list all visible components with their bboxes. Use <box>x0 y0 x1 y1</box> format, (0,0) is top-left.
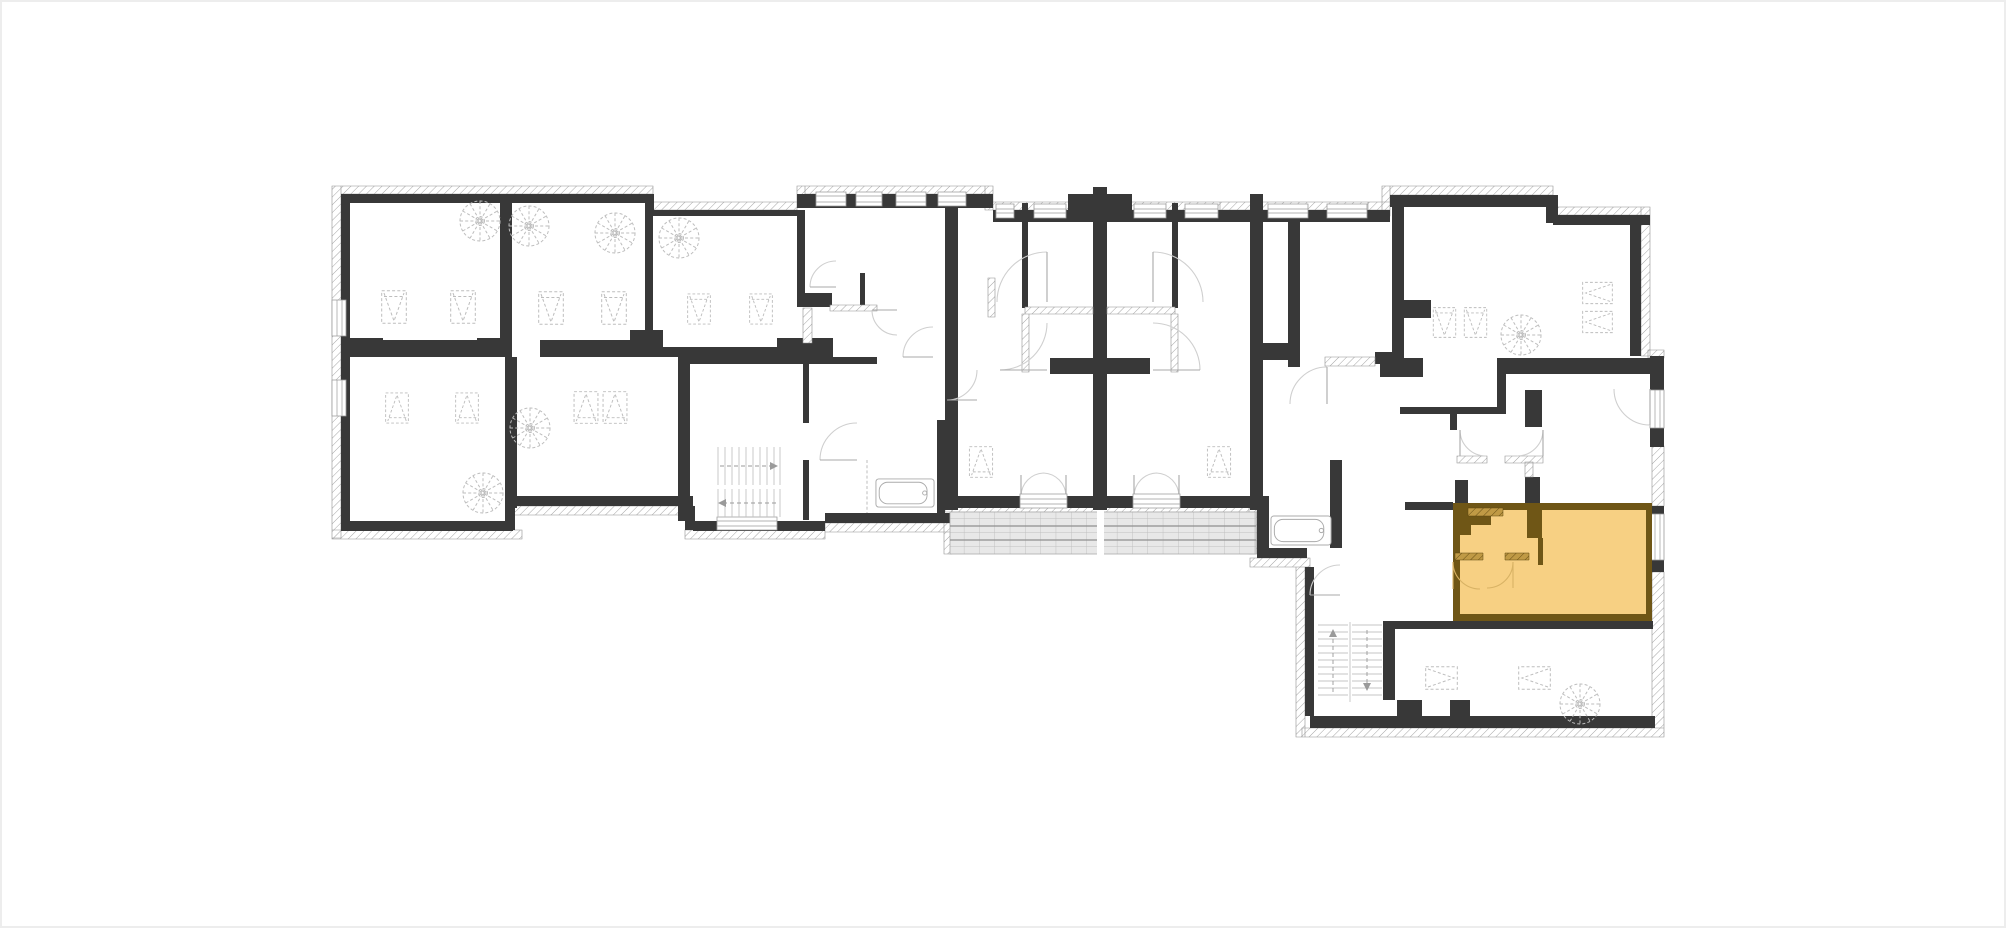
wardrobe-symbol <box>382 291 407 324</box>
sideboard-symbol <box>1583 311 1613 332</box>
sideboard-symbol <box>1519 667 1551 690</box>
chandelier-symbol <box>1501 315 1541 355</box>
wardrobe-symbol <box>1464 308 1486 338</box>
stair-arrow-head <box>1363 683 1371 691</box>
wardrobe-symbol <box>602 292 627 325</box>
bathtub-symbol <box>876 479 934 507</box>
french-door <box>1021 473 1066 496</box>
terrace-divider <box>1097 510 1104 556</box>
stair-treads <box>1318 622 1382 702</box>
wardrobe-symbol <box>688 294 711 324</box>
staircase-wing <box>1318 622 1382 702</box>
floor-plan <box>0 0 2006 928</box>
partition-hatch-walls <box>803 278 1543 477</box>
stair-direction-line <box>720 466 776 503</box>
chandelier-symbol <box>595 213 635 253</box>
highlighted-unit[interactable] <box>1453 503 1652 621</box>
sideboard-symbol <box>1426 667 1458 690</box>
staircase-left <box>718 447 780 517</box>
stair-arrow-head <box>718 499 726 507</box>
wardrobe-symbol <box>386 393 409 423</box>
chandelier-symbol <box>1560 684 1600 724</box>
chandelier-symbol <box>509 206 549 246</box>
wardrobe-symbol <box>539 292 564 325</box>
wardrobe-symbol <box>574 392 598 424</box>
chandelier-symbol <box>659 218 699 258</box>
wardrobe-symbol <box>603 392 627 424</box>
wardrobe-symbol <box>750 294 773 324</box>
partition-hatch-segment <box>803 278 1543 477</box>
stair-arrow-head <box>1329 629 1337 637</box>
french-door <box>1134 473 1179 496</box>
chandelier-symbol <box>460 201 500 241</box>
terrace <box>950 510 1256 556</box>
chandelier-symbol <box>510 408 550 448</box>
floor-plan-page <box>0 0 2006 928</box>
wardrobe-symbol <box>456 393 479 423</box>
sideboard-symbol <box>1583 282 1613 303</box>
bathtub-symbol <box>1271 516 1331 545</box>
stair-treads <box>718 447 780 517</box>
wardrobe-symbol <box>1433 308 1455 338</box>
chandelier-symbol <box>463 473 503 513</box>
wardrobe-symbol <box>451 291 476 324</box>
wardrobe-symbol <box>1207 447 1230 478</box>
furniture <box>382 201 1613 724</box>
wardrobe-symbol <box>969 447 992 478</box>
